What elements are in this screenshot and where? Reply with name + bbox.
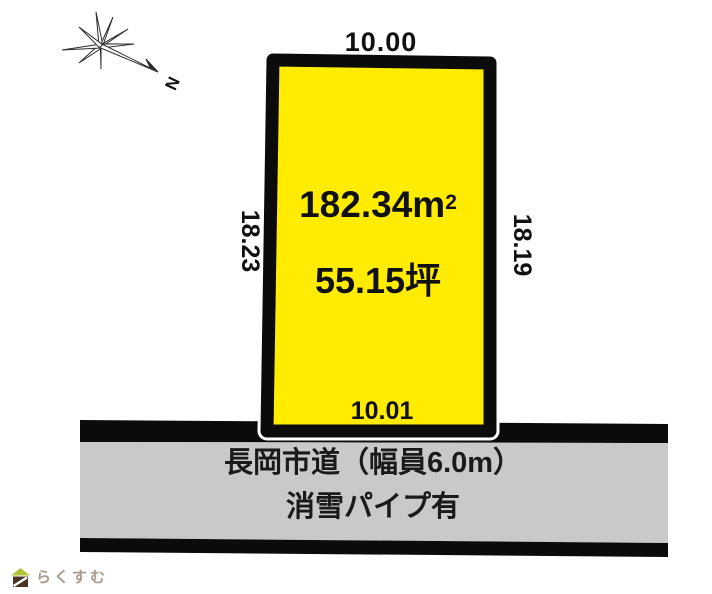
north-label: N	[161, 74, 183, 93]
site-logo: らくすむ	[11, 567, 108, 587]
area-tsubo: 55.15坪	[266, 263, 490, 299]
dimension-top: 10.00	[271, 29, 491, 56]
dimension-bottom: 10.01	[272, 399, 492, 424]
parcel-polygon	[267, 60, 490, 431]
house-roof	[11, 568, 30, 576]
parcel	[267, 60, 490, 431]
road-note-label: 消雪パイプ有	[78, 493, 668, 522]
area-m2-superscript: 2	[445, 191, 457, 214]
compass-ray-se-long	[100, 45, 159, 73]
area-square-meters: 182.34m2	[266, 186, 490, 223]
dimension-left: 18.23	[236, 201, 262, 281]
logo-text: らくすむ	[36, 570, 108, 585]
land-plot-diagram: N 10.00 18.23 18.19 10.01 182.34m2 55.15…	[0, 0, 712, 594]
north-arrow-barb	[146, 59, 158, 72]
house-icon	[11, 568, 30, 587]
area-m2-value: 182.34m	[299, 184, 445, 225]
road-band	[80, 420, 668, 557]
dimension-right: 18.19	[508, 205, 534, 285]
road-name-label: 長岡市道（幅員6.0m）	[78, 449, 668, 478]
compass-rose-icon	[62, 12, 158, 72]
